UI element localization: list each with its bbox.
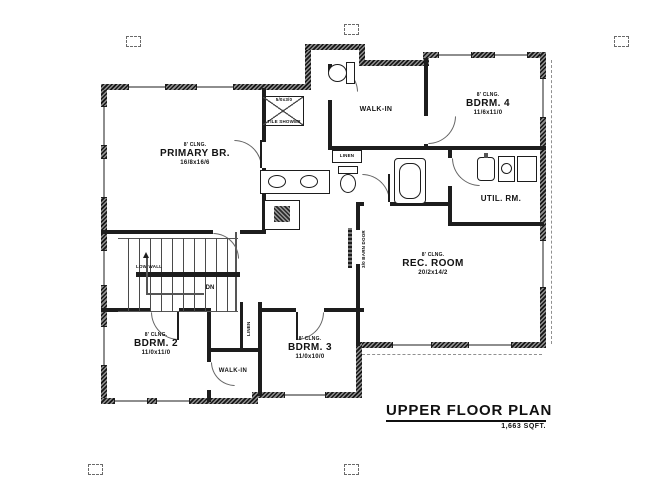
sink-fixture: [300, 175, 318, 188]
washer-door: [501, 163, 512, 174]
window: [156, 398, 190, 404]
plan-area: 1,663 SQFT.: [386, 423, 546, 430]
wall: [356, 342, 546, 348]
wall: [356, 202, 360, 230]
wall: [101, 230, 213, 234]
shower-name-label: TILE SHOWER: [263, 120, 305, 125]
wall: [448, 150, 452, 158]
title-block: UPPER FLOOR PLAN 1,663 SQFT.: [386, 402, 546, 430]
sheet-mark: [88, 464, 103, 475]
room-dims: 11/6x11/0: [438, 110, 538, 117]
toilet-tank: [338, 166, 358, 174]
sheet-mark: [614, 36, 629, 47]
linen-cabinet: LINEN: [332, 150, 362, 163]
window: [284, 392, 326, 398]
bathtub-basin: [399, 163, 421, 199]
room-name: PRIMARY BR.: [135, 148, 255, 160]
window: [114, 398, 148, 404]
plan-title: UPPER FLOOR PLAN: [386, 402, 546, 422]
room-name: BDRM. 4: [438, 98, 538, 110]
wall: [448, 222, 544, 226]
window: [540, 240, 546, 288]
window: [128, 84, 166, 90]
low-wall-label: LOW WALL: [136, 265, 176, 270]
utility-sink-fixture: [477, 157, 495, 181]
room-dims: 11/0x11/0: [108, 350, 204, 357]
stair-direction-line: [146, 258, 148, 294]
sheet-mark: [126, 36, 141, 47]
room-name: BDRM. 2: [108, 338, 204, 350]
window: [101, 106, 107, 146]
window: [101, 326, 107, 366]
tub-basin-fixture: [274, 206, 290, 222]
stairs-edge: [118, 311, 238, 312]
window: [101, 250, 107, 286]
wall: [359, 60, 429, 66]
room-name: WALK-IN: [209, 368, 257, 375]
window: [196, 84, 234, 90]
stairs-edge: [118, 238, 238, 239]
wall: [305, 44, 311, 90]
window: [468, 342, 512, 348]
room-label-walkin-top: WALK-IN: [345, 106, 407, 114]
stair-tread: [128, 238, 129, 312]
wall: [356, 342, 362, 398]
room-name: WALK-IN: [345, 106, 407, 114]
window: [438, 52, 472, 58]
toilet-tank: [346, 62, 355, 84]
room-name: UTIL. RM.: [468, 194, 534, 204]
window: [540, 78, 546, 118]
room-name: BDRM. 3: [264, 342, 356, 354]
toilet-bowl: [328, 64, 347, 82]
room-label-linen-bottom: LINEN: [247, 312, 252, 346]
room-dims: 16/8x16/6: [135, 160, 255, 167]
shower-dims-label: 5/0x3/0: [263, 98, 305, 103]
dryer-fixture: [517, 156, 537, 182]
wall: [424, 144, 428, 150]
wall: [207, 308, 211, 362]
room-label-util: UTIL. RM.: [468, 194, 534, 204]
stair-direction-line: [146, 293, 204, 295]
wall: [424, 58, 428, 116]
room-label-rec: 8' CLNG. REC. ROOM 20/2x14/2: [378, 252, 488, 277]
wall: [328, 100, 332, 150]
room-name: REC. ROOM: [378, 258, 488, 270]
roof-dashed-line: [362, 354, 542, 355]
wall: [207, 390, 211, 402]
room-dims: 20/2x14/2: [378, 270, 488, 277]
wall: [240, 302, 243, 350]
room-label-primary: 8' CLNG. PRIMARY BR. 16/8x16/6: [135, 142, 255, 167]
barn-door-leaf: [348, 228, 352, 268]
wall: [258, 308, 296, 312]
toilet-bowl: [340, 174, 356, 193]
tile-shower-fixture: 5/0x3/0 TILE SHOWER: [262, 96, 304, 126]
door-leaf: [388, 174, 390, 202]
wall: [356, 264, 360, 346]
door-swing-arc: [428, 116, 456, 144]
sheet-mark: [344, 464, 359, 475]
barn-door-note: 3/0 BARN DOOR: [362, 226, 367, 272]
dn-label: DN: [200, 285, 220, 292]
stairs-low-wall: [136, 272, 240, 277]
wall: [207, 348, 262, 352]
door-swing-arc: [362, 174, 390, 202]
wall: [324, 308, 364, 312]
sheet-mark: [344, 24, 359, 35]
window: [494, 52, 528, 58]
window: [101, 158, 107, 198]
room-dims: 11/0x10/0: [264, 354, 356, 361]
wall: [448, 186, 452, 226]
sink-fixture: [268, 175, 286, 188]
wall: [305, 44, 365, 50]
floor-plan-sheet: LOW WALL DN 5/0x3/0 TILE SHOWER LINEN 8'…: [0, 0, 650, 502]
door-leaf: [260, 140, 262, 168]
room-label-bdrm4: 8' CLNG. BDRM. 4 11/6x11/0: [438, 92, 538, 117]
window: [392, 342, 432, 348]
room-label-bdrm3: 8' CLNG. BDRM. 3 11/0x10/0: [264, 336, 356, 361]
faucet: [484, 153, 488, 158]
room-label-bdrm2: 8' CLNG. BDRM. 2 11/0x11/0: [108, 332, 204, 357]
linen-label: LINEN: [333, 154, 361, 159]
door-swing-arc: [452, 158, 480, 186]
roof-dashed-line: [551, 60, 552, 344]
room-label-walkin-bottom: WALK-IN: [209, 368, 257, 375]
